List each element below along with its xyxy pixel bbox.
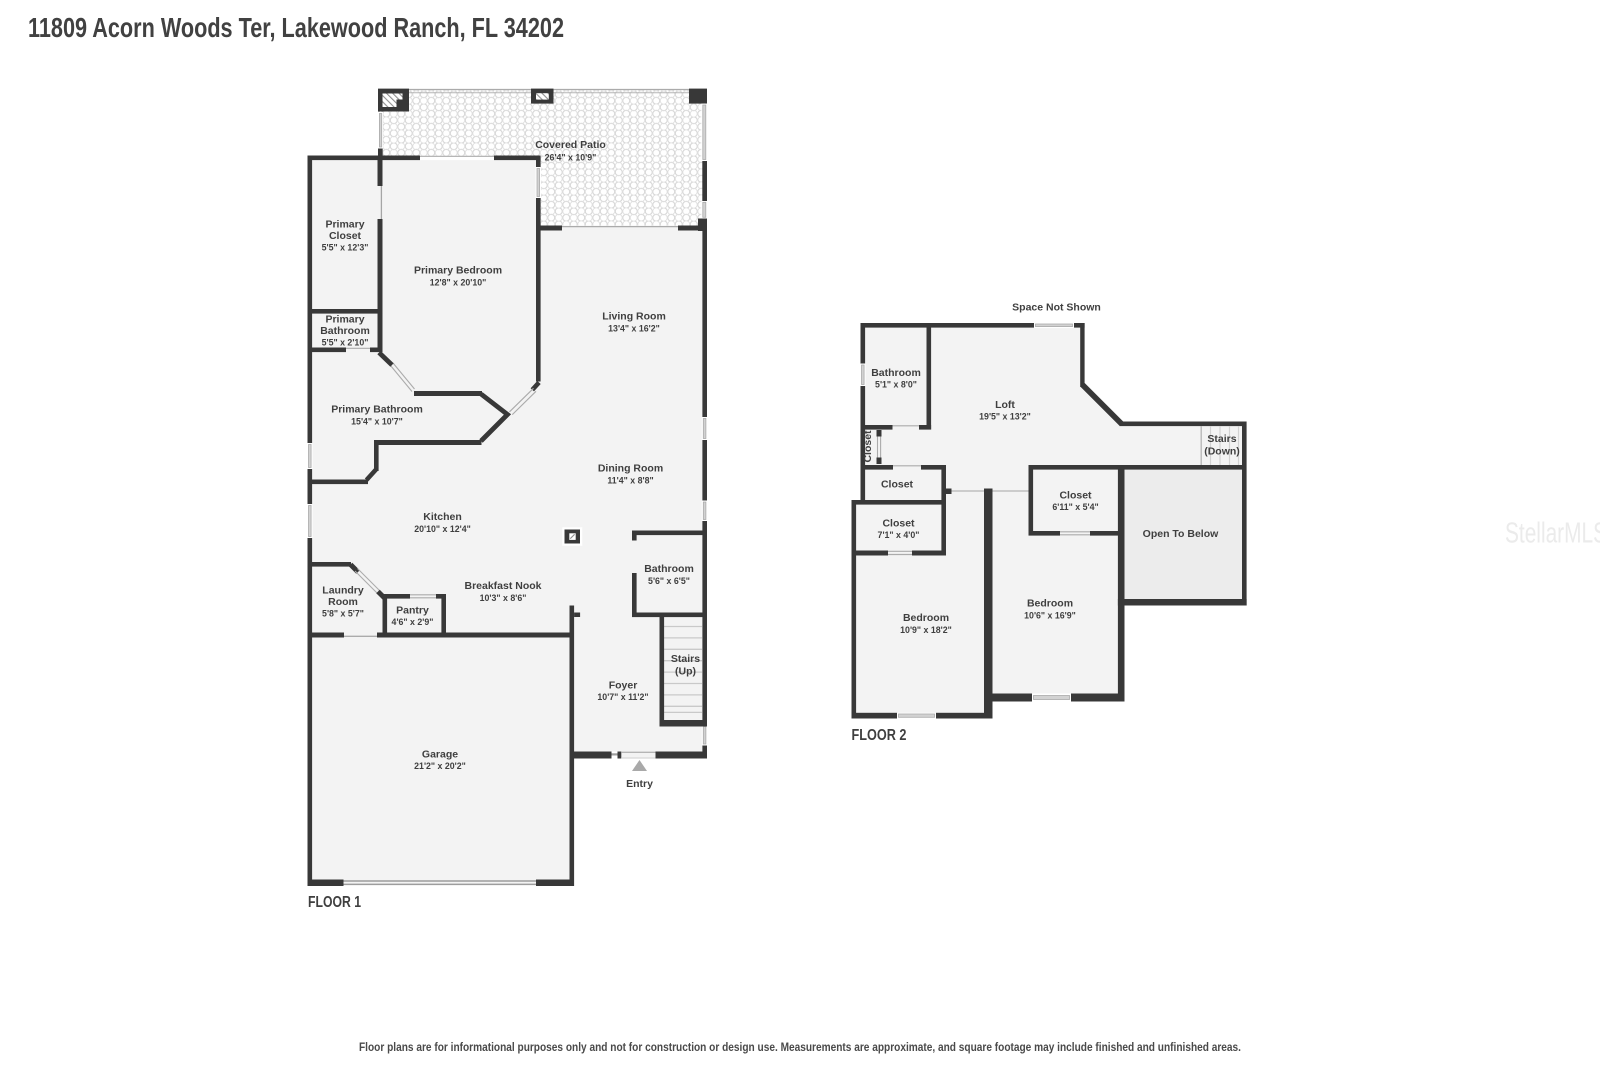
- svg-text:Primary: Primary: [325, 314, 364, 326]
- svg-text:Open To Below: Open To Below: [1143, 528, 1219, 540]
- svg-text:13'4" x 16'2": 13'4" x 16'2": [608, 324, 660, 334]
- svg-text:Loft: Loft: [995, 399, 1015, 411]
- svg-text:19'5" x 13'2": 19'5" x 13'2": [979, 412, 1031, 422]
- svg-text:10'6" x 16'9": 10'6" x 16'9": [1024, 611, 1076, 621]
- svg-text:5'8" x 5'7": 5'8" x 5'7": [322, 609, 364, 619]
- svg-text:FLOOR 1: FLOOR 1: [308, 894, 361, 911]
- svg-text:11'4" x 8'8": 11'4" x 8'8": [607, 476, 653, 486]
- svg-text:Bedroom: Bedroom: [1027, 598, 1073, 610]
- svg-text:Primary Bathroom: Primary Bathroom: [331, 404, 423, 416]
- svg-text:10'3" x 8'6": 10'3" x 8'6": [480, 593, 527, 603]
- svg-text:Bathroom: Bathroom: [644, 563, 694, 575]
- svg-text:Floor plans are for informatio: Floor plans are for informational purpos…: [359, 1042, 1241, 1054]
- svg-text:(Up): (Up): [675, 666, 696, 678]
- svg-text:Closet: Closet: [1059, 490, 1092, 502]
- svg-text:5'6" x 6'5": 5'6" x 6'5": [648, 576, 690, 586]
- svg-text:Garage: Garage: [422, 749, 458, 761]
- svg-text:15'4" x 10'7": 15'4" x 10'7": [351, 417, 403, 427]
- svg-text:Pantry: Pantry: [396, 605, 429, 617]
- svg-text:10'7" x 11'2": 10'7" x 11'2": [597, 692, 648, 702]
- svg-text:Closet: Closet: [329, 230, 362, 242]
- svg-text:4'6" x 2'9": 4'6" x 2'9": [392, 617, 434, 627]
- svg-text:20'10" x 12'4": 20'10" x 12'4": [414, 524, 471, 534]
- svg-text:7'1" x 4'0": 7'1" x 4'0": [878, 530, 920, 540]
- svg-text:5'5" x 2'10": 5'5" x 2'10": [322, 338, 369, 348]
- svg-text:12'8" x 20'10": 12'8" x 20'10": [430, 278, 487, 288]
- svg-text:Primary: Primary: [325, 219, 364, 231]
- svg-text:StellarMLS: StellarMLS: [1505, 518, 1600, 550]
- svg-text:5'5" x 12'3": 5'5" x 12'3": [322, 243, 369, 253]
- svg-text:Closet: Closet: [882, 518, 915, 530]
- svg-text:Living Room: Living Room: [602, 311, 666, 323]
- svg-text:11809 Acorn Woods Ter, Lakewoo: 11809 Acorn Woods Ter, Lakewood Ranch, F…: [28, 12, 564, 43]
- svg-text:21'2" x 20'2": 21'2" x 20'2": [414, 761, 466, 771]
- svg-text:Covered Patio: Covered Patio: [535, 139, 606, 151]
- svg-text:6'11" x 5'4": 6'11" x 5'4": [1052, 502, 1098, 512]
- svg-text:10'9" x 18'2": 10'9" x 18'2": [900, 625, 952, 635]
- svg-text:Closet: Closet: [862, 430, 874, 463]
- svg-text:Space Not Shown: Space Not Shown: [1012, 302, 1101, 314]
- svg-text:5'1" x 8'0": 5'1" x 8'0": [875, 380, 917, 390]
- svg-text:Closet: Closet: [881, 479, 914, 491]
- svg-text:Entry: Entry: [626, 778, 653, 790]
- svg-text:Bathroom: Bathroom: [871, 367, 921, 379]
- svg-text:Dining Room: Dining Room: [598, 463, 663, 475]
- svg-text:(Down): (Down): [1204, 446, 1240, 458]
- svg-text:Laundry: Laundry: [322, 585, 364, 597]
- svg-text:Foyer: Foyer: [609, 680, 638, 692]
- svg-text:Bathroom: Bathroom: [320, 325, 370, 337]
- svg-text:Primary Bedroom: Primary Bedroom: [414, 265, 502, 277]
- svg-text:Bedroom: Bedroom: [903, 612, 949, 624]
- svg-text:Breakfast Nook: Breakfast Nook: [464, 580, 541, 592]
- svg-text:Stairs: Stairs: [671, 653, 700, 665]
- svg-text:FLOOR 2: FLOOR 2: [852, 727, 907, 744]
- svg-text:Stairs: Stairs: [1207, 433, 1236, 445]
- svg-text:Kitchen: Kitchen: [423, 511, 462, 523]
- svg-text:Room: Room: [328, 596, 358, 608]
- svg-text:26'4" x 10'9": 26'4" x 10'9": [545, 153, 597, 163]
